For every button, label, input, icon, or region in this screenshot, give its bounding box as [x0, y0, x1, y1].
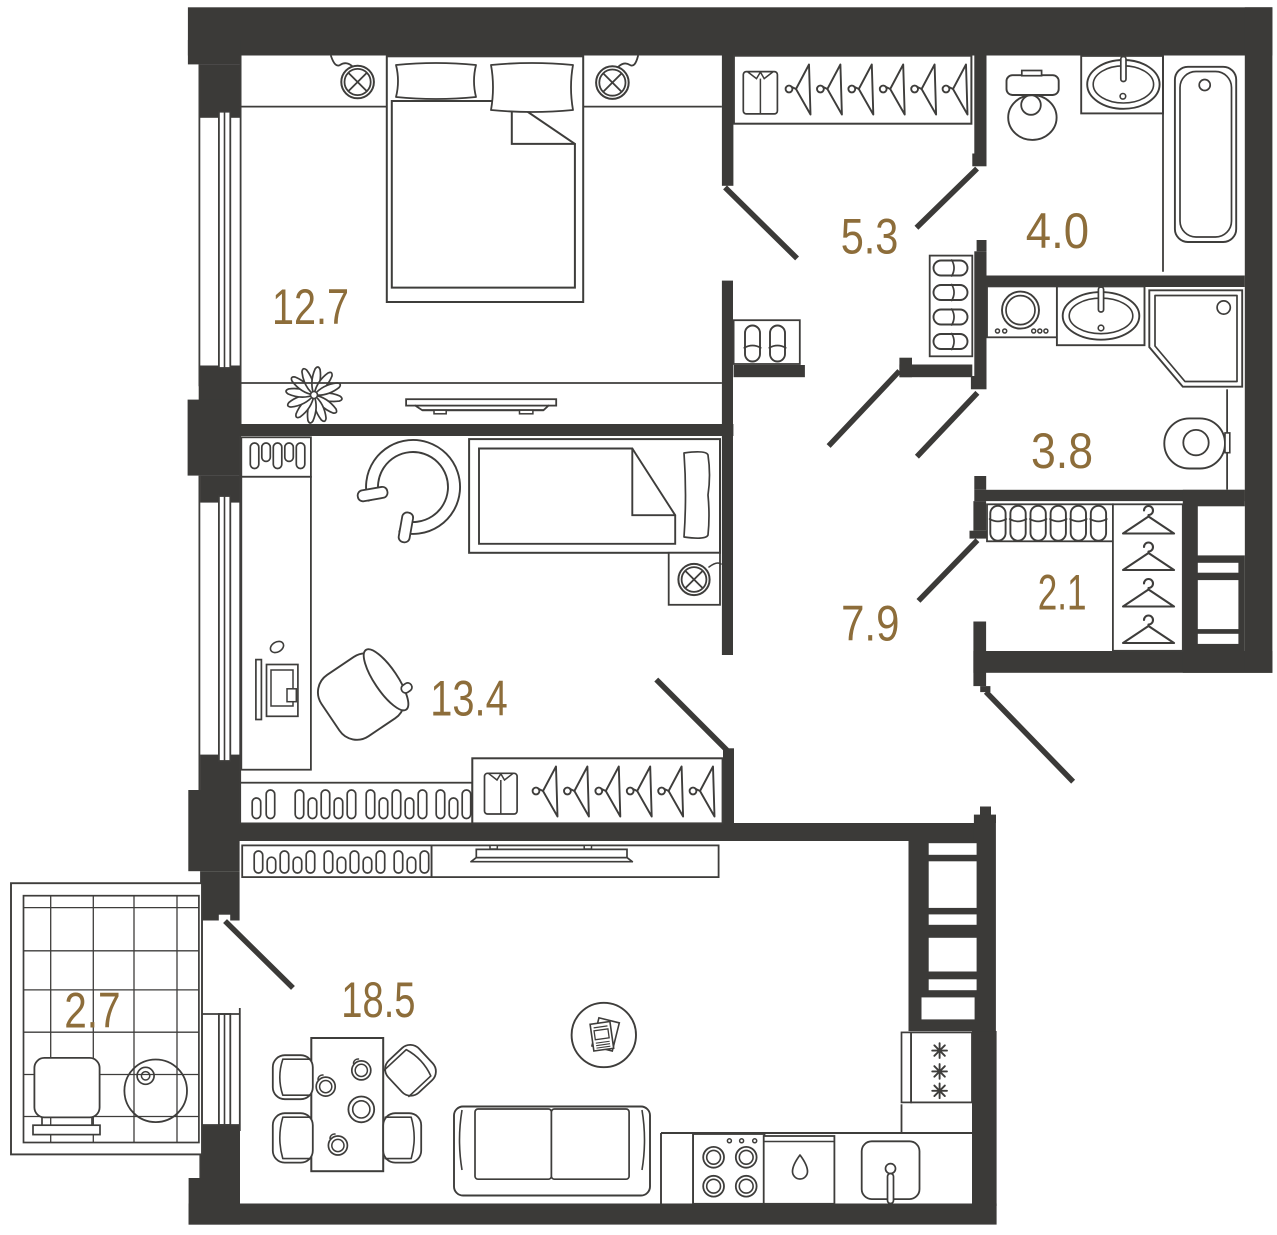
- svg-text:4.0: 4.0: [1026, 203, 1089, 259]
- svg-text:12.7: 12.7: [272, 279, 349, 335]
- svg-text:3.8: 3.8: [1031, 423, 1093, 479]
- svg-text:13.4: 13.4: [430, 671, 507, 727]
- svg-text:2.7: 2.7: [64, 983, 120, 1039]
- svg-text:2.1: 2.1: [1038, 565, 1087, 621]
- svg-text:7.9: 7.9: [841, 596, 899, 652]
- svg-text:18.5: 18.5: [341, 972, 415, 1028]
- svg-text:5.3: 5.3: [841, 209, 899, 265]
